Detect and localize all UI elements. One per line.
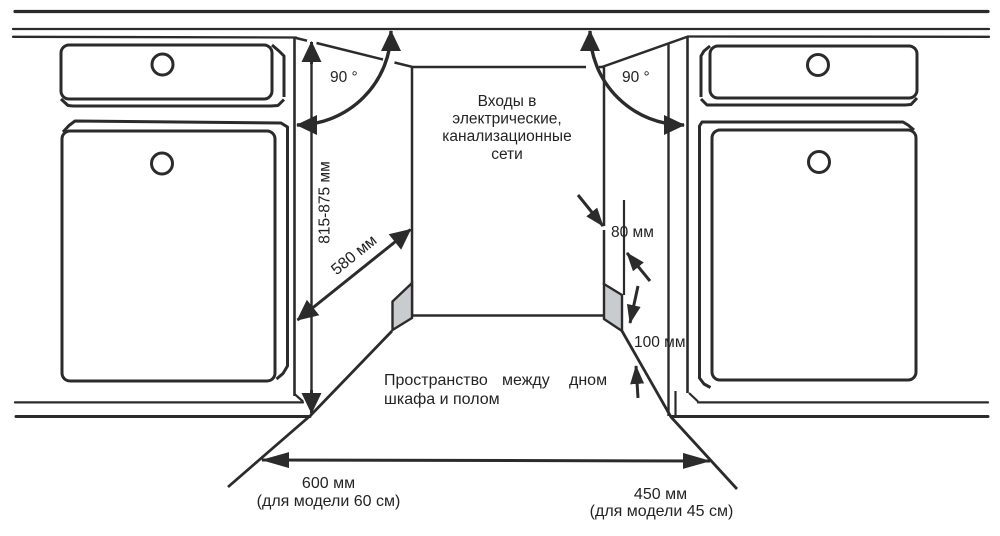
- svg-text:Пространство: Пространство: [384, 372, 488, 389]
- svg-text:600 мм: 600 мм: [302, 475, 355, 492]
- svg-text:100 мм: 100 мм: [634, 334, 685, 351]
- svg-text:815-875 мм: 815-875 мм: [317, 161, 334, 244]
- svg-text:450 мм: 450 мм: [634, 486, 687, 503]
- svg-text:сети: сети: [491, 146, 523, 163]
- svg-text:Входы в: Входы в: [478, 93, 537, 110]
- svg-text:80 мм: 80 мм: [611, 224, 654, 241]
- svg-text:(для модели 60 см): (для модели 60 см): [257, 493, 401, 510]
- svg-text:шкафа и полом: шкафа и полом: [384, 391, 500, 408]
- svg-text:электрические,: электрические,: [452, 111, 561, 128]
- svg-text:90 °: 90 °: [622, 69, 650, 86]
- svg-text:90 °: 90 °: [330, 69, 358, 86]
- svg-text:канализационные: канализационные: [442, 128, 571, 145]
- svg-text:между: между: [502, 372, 550, 389]
- svg-text:дном: дном: [569, 372, 607, 389]
- svg-text:(для модели 45 см): (для модели 45 см): [590, 503, 734, 520]
